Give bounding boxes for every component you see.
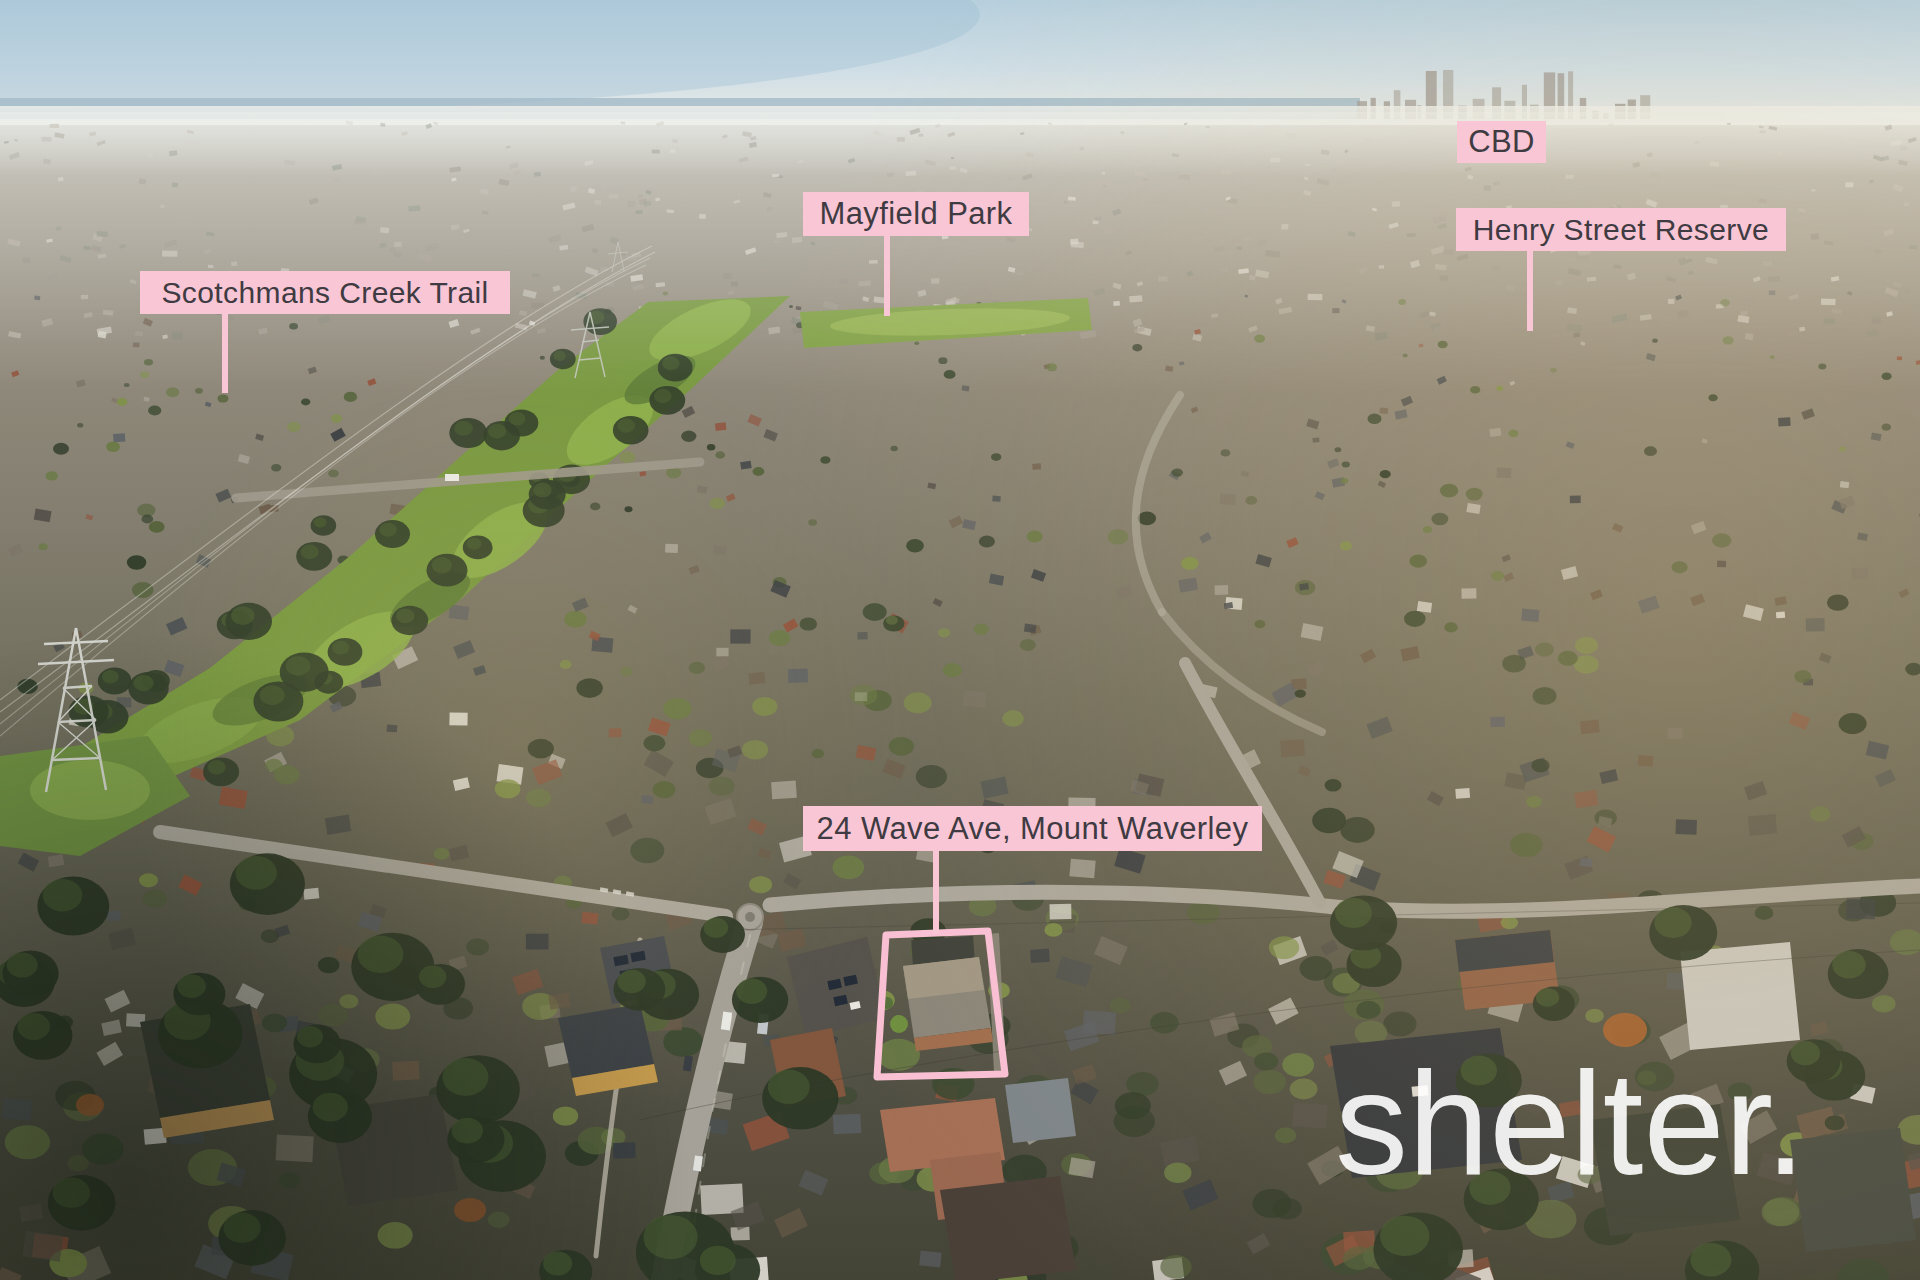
location-label-text: Scotchmans Creek Trail: [161, 276, 488, 310]
aerial-photo: Scotchmans Creek Trail Mayfield Park CBD…: [0, 0, 1920, 1280]
label-pointer-henry-street-reserve: [1527, 249, 1533, 331]
location-label-text: Mayfield Park: [820, 196, 1013, 232]
location-label-mayfield-park: Mayfield Park: [803, 192, 1029, 236]
location-label-property-address: 24 Wave Ave, Mount Waverley: [803, 806, 1262, 851]
label-pointer-mayfield-park: [884, 234, 890, 316]
location-label-text: 24 Wave Ave, Mount Waverley: [817, 811, 1249, 847]
location-label-cbd: CBD: [1457, 121, 1546, 163]
location-label-scotchmans-creek-trail: Scotchmans Creek Trail: [140, 271, 510, 314]
label-pointer-scotchmans-creek-trail: [222, 312, 228, 393]
label-pointer-property-address: [933, 849, 939, 934]
location-label-text: Henry Street Reserve: [1473, 213, 1769, 247]
location-label-henry-street-reserve: Henry Street Reserve: [1456, 208, 1786, 251]
watermark-logo: shelter.: [1335, 1051, 1806, 1197]
location-label-text: CBD: [1468, 124, 1535, 160]
